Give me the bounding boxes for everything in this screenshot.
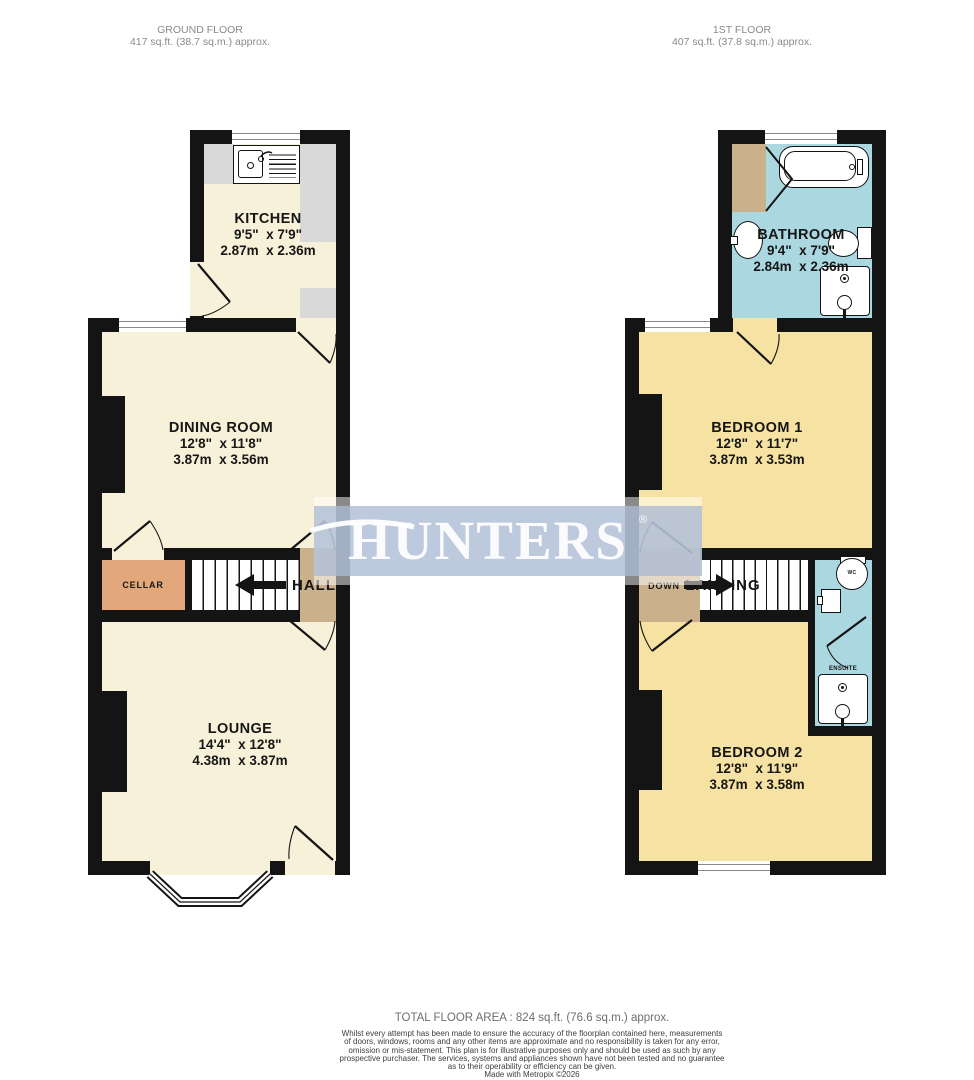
bedroom2-label: BEDROOM 2 12'8" x 11'9" 3.87m x 3.58m <box>709 745 804 792</box>
lounge-label: LOUNGE 14'4" x 12'8" 4.38m x 3.87m <box>192 721 287 768</box>
bath-tub-inner <box>784 151 856 181</box>
kitchen-name: KITCHEN <box>220 211 315 227</box>
lounge-chimney-breast <box>88 691 127 792</box>
dining-room-name: DINING ROOM <box>169 420 273 436</box>
kitchen-counter-left <box>204 144 234 184</box>
shower-drain-inner <box>843 277 846 280</box>
bedroom2-dims-ft: 12'8" x 11'9" <box>709 761 804 777</box>
kitchen-back-door-opening <box>190 262 204 316</box>
ensuite-label: ENSUITE <box>829 666 857 672</box>
bedroom1-name: BEDROOM 1 <box>709 420 804 436</box>
floorplan-canvas: GROUND FLOOR 417 sq.ft. (38.7 sq.m.) app… <box>0 0 974 1080</box>
bathroom-dims-ft: 9'4" x 7'9" <box>753 243 848 259</box>
bathroom-door-opening <box>733 318 777 332</box>
first-floor-title: 1ST FLOOR <box>602 24 882 36</box>
kitchen-dims-ft: 9'5" x 7'9" <box>220 227 315 243</box>
lounge-dims-ft: 14'4" x 12'8" <box>192 737 287 753</box>
bay-window-glass <box>150 874 270 902</box>
bay-window-opening <box>150 861 270 875</box>
metropix-credit: Made with Metropix ©2026 <box>242 1071 822 1079</box>
bath-drain <box>849 164 855 170</box>
disclaimer: Whilst every attempt has been made to en… <box>242 1030 822 1080</box>
sink-drain <box>247 162 254 169</box>
bay-window-frame <box>150 874 270 902</box>
bedroom1-dims-m: 3.87m x 3.53m <box>709 452 804 468</box>
total-floor-area: TOTAL FLOOR AREA : 824 sq.ft. (76.6 sq.m… <box>242 1012 822 1024</box>
bedroom2-name: BEDROOM 2 <box>709 745 804 761</box>
ground-floor-header: GROUND FLOOR 417 sq.ft. (38.7 sq.m.) app… <box>60 24 340 48</box>
bedroom1-window <box>645 318 710 332</box>
hall-label: HALL <box>292 577 336 594</box>
down-label: DOWN <box>648 581 680 591</box>
bedroom1-dims-ft: 12'8" x 11'7" <box>709 436 804 452</box>
dining-room-dims-m: 3.87m x 3.56m <box>169 452 273 468</box>
ensuite-shower-head <box>835 704 850 719</box>
bathroom-name: BATHROOM <box>753 227 848 243</box>
lounge-dims-m: 4.38m x 3.87m <box>192 753 287 769</box>
hunters-logo-text: HUNTERS <box>318 499 658 583</box>
wc-sink <box>821 589 841 613</box>
sink-drainboard <box>269 151 296 178</box>
ground-stairs <box>192 560 300 610</box>
ensuite-shower <box>818 674 868 724</box>
bathroom-dims-m: 2.84m x 2.36m <box>753 259 848 275</box>
dining-door-opening <box>296 318 336 332</box>
dining-chimney-breast <box>88 396 125 493</box>
bath-tub <box>779 146 869 188</box>
ground-floor-title: GROUND FLOOR <box>60 24 340 36</box>
dining-room-dims-ft: 12'8" x 11'8" <box>169 436 273 452</box>
ensuite-shower-hose <box>841 718 844 726</box>
shower-head <box>837 295 852 310</box>
bathroom-window <box>765 130 837 144</box>
bathroom-label: BATHROOM 9'4" x 7'9" 2.84m x 2.36m <box>753 227 848 274</box>
kitchen-window <box>232 130 300 144</box>
bay-window <box>150 874 270 902</box>
lounge-name: LOUNGE <box>192 721 287 737</box>
ground-floor-area: 417 sq.ft. (38.7 sq.m.) approx. <box>60 36 340 48</box>
bedroom2-chimney-breast <box>625 690 662 790</box>
landing-label: LANDING <box>685 577 760 594</box>
wc-label: WC <box>848 570 857 576</box>
bathroom-toilet-cistern <box>857 227 872 259</box>
bathroom-sink-tap <box>730 236 738 245</box>
bedroom1-label: BEDROOM 1 12'8" x 11'7" 3.87m x 3.53m <box>709 420 804 467</box>
ensuite-shower-drain-inner <box>841 686 844 689</box>
bedroom2-dims-m: 3.87m x 3.58m <box>709 777 804 793</box>
shower-hose <box>843 309 846 318</box>
wc-sink-tap <box>817 596 823 605</box>
dining-window <box>119 318 186 332</box>
bathroom-cupboard <box>732 144 766 212</box>
bay-window-mullion <box>150 874 270 902</box>
dining-room-label: DINING ROOM 12'8" x 11'8" 3.87m x 3.56m <box>169 420 273 467</box>
kitchen-dims-m: 2.87m x 2.36m <box>220 243 315 259</box>
cellar-label: CELLAR <box>122 580 163 590</box>
first-floor-area: 407 sq.ft. (37.8 sq.m.) approx. <box>602 36 882 48</box>
kitchen-sink-unit <box>233 145 300 184</box>
bath-taps <box>857 159 863 175</box>
bedroom1-chimney-breast <box>625 394 662 490</box>
cellar-door-opening <box>112 548 164 560</box>
first-floor-header: 1ST FLOOR 407 sq.ft. (37.8 sq.m.) approx… <box>602 24 882 48</box>
kitchen-label: KITCHEN 9'5" x 7'9" 2.87m x 2.36m <box>220 211 315 258</box>
bedroom2-window <box>698 861 770 875</box>
front-door-opening <box>285 861 335 875</box>
